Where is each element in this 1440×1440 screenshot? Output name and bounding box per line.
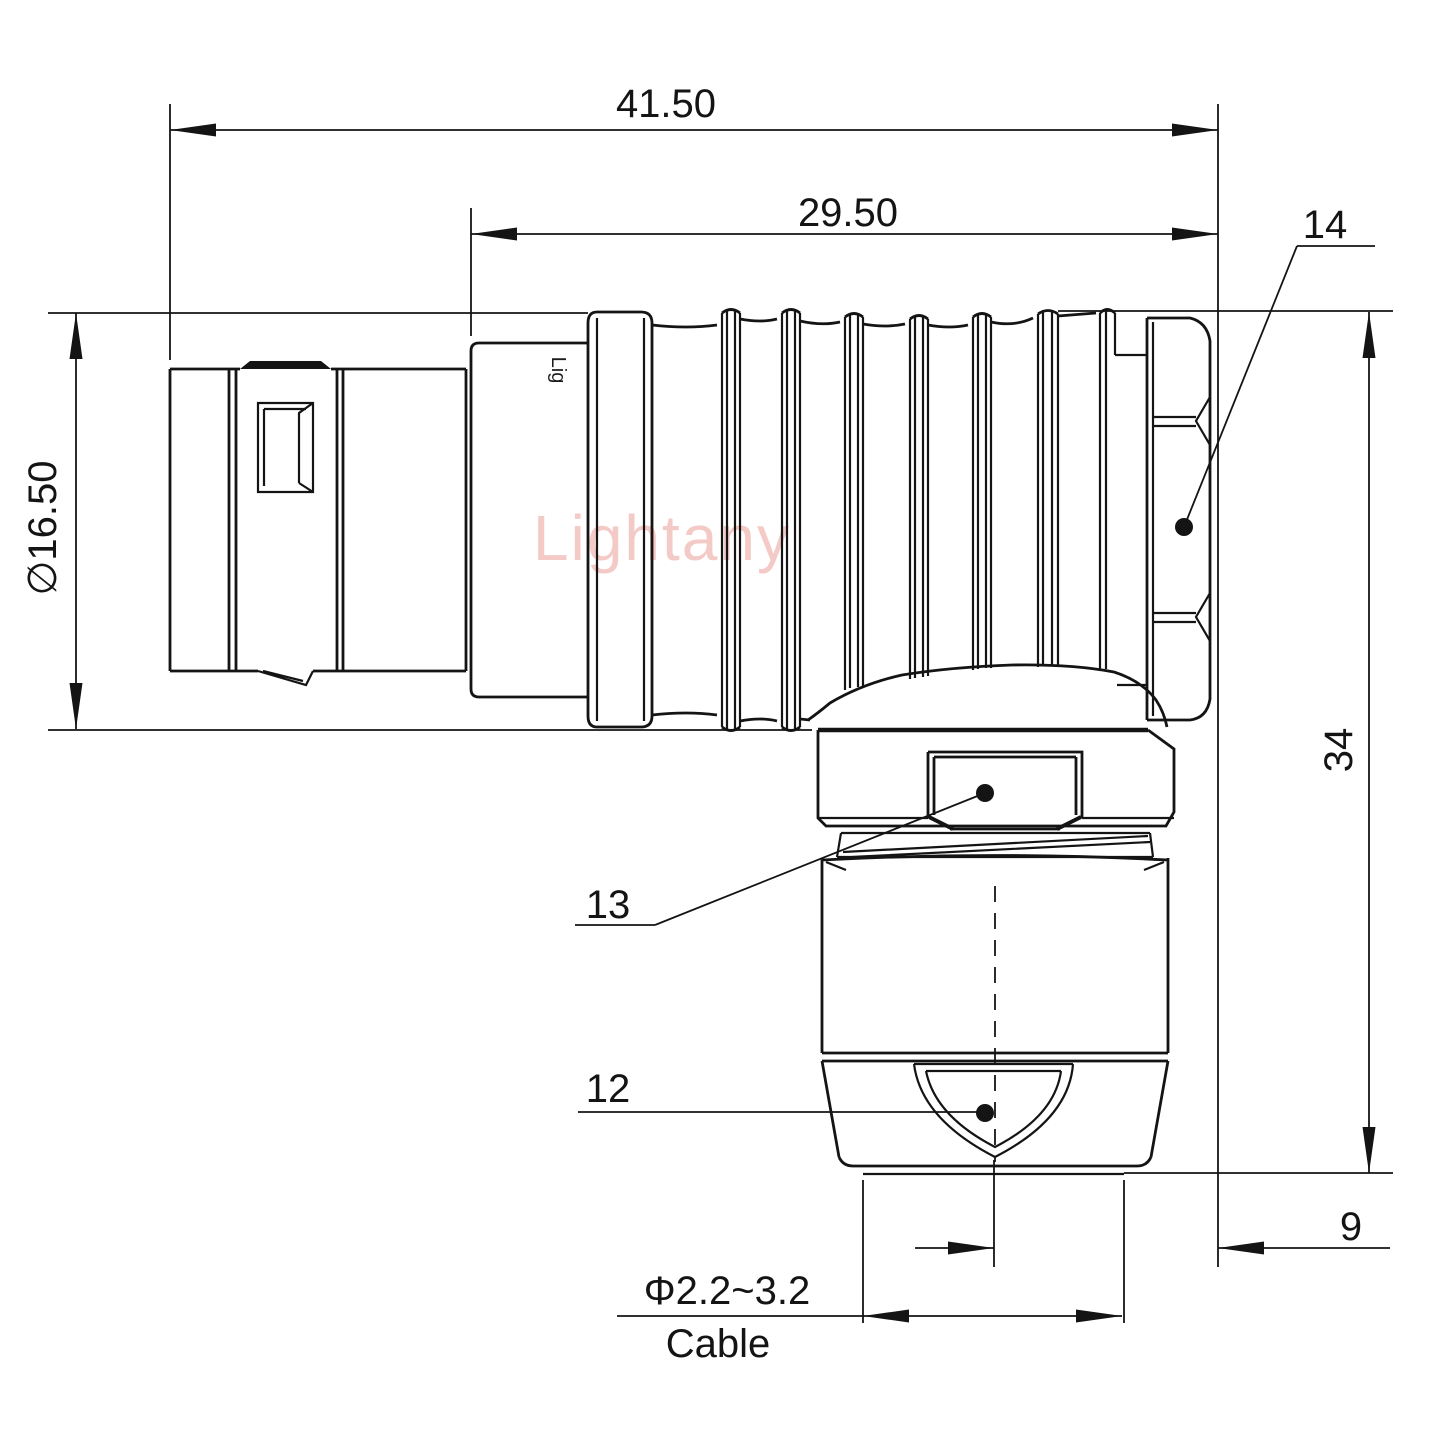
bayonet-lip: [240, 361, 331, 369]
label-elbow-nut: 13: [586, 883, 631, 927]
bayonet-slot-window: [258, 403, 313, 492]
dim-axis-offset: 9: [1340, 1205, 1362, 1249]
label-cable-clamp: 12: [586, 1067, 631, 1111]
elbow-nut-flat-face: [928, 752, 1082, 829]
dim-overall-height: 34: [1317, 728, 1361, 773]
label-backnut: 14: [1303, 203, 1348, 247]
dim-cable-word: Cable: [666, 1322, 771, 1366]
leader-dot-elbow-nut: [976, 784, 994, 802]
technical-drawing-canvas: Lightany Lig: [0, 0, 1440, 1440]
dimension-lines: [76, 130, 1390, 1316]
extension-lines: [48, 104, 1393, 1323]
dim-rear-length: 29.50: [798, 191, 898, 235]
bayonet-ramp: [258, 671, 313, 685]
backnut-step: [1115, 355, 1147, 685]
elbow-nut-body: [818, 730, 1174, 826]
sealing-washer: [837, 833, 1153, 857]
dim-shell-diameter: ∅16.50: [21, 461, 65, 596]
dim-cable-diameter: Φ2.2~3.2: [644, 1269, 810, 1313]
body-brand-mark: Lig: [547, 357, 569, 384]
watermark: Lightany: [533, 502, 791, 574]
leader-lines: [575, 246, 1375, 1112]
connector-side-view: Lig: [170, 309, 1210, 1174]
clamp-barrel-corner-ticks: [826, 862, 1164, 870]
elbow-shoulder-curve: [808, 665, 1167, 727]
dim-overall-length: 41.50: [616, 82, 716, 126]
front-shell: [170, 369, 466, 671]
grip-rib-edges: [722, 309, 1115, 731]
drawing-page: Lightany Lig: [0, 0, 1440, 1440]
backnut-hex: [1147, 318, 1210, 720]
leader-dot-backnut: [1175, 518, 1193, 536]
leader-dot-cable-clamp: [976, 1104, 994, 1122]
